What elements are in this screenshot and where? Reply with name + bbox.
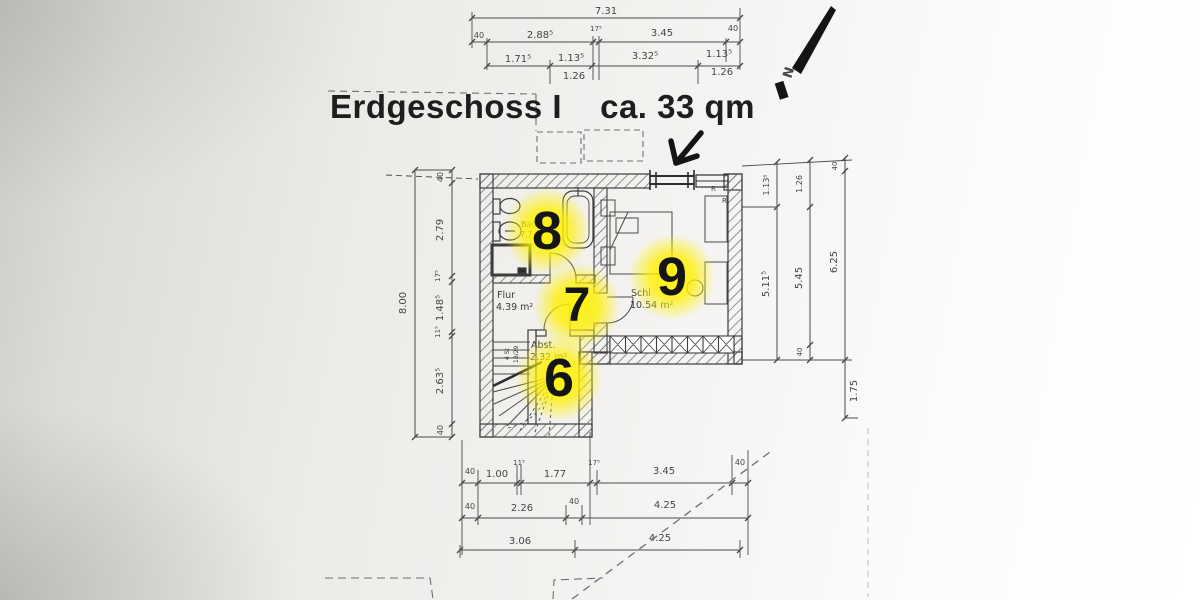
dim-label: 2.79	[435, 219, 446, 241]
dim-label: 1.77	[544, 469, 566, 480]
dimension-labels-top: 7.31 40 2.88⁵ 17⁵ 3.45 40 1.71⁵ 1.13⁵ 3.…	[474, 6, 738, 82]
dimension-chain-bottom	[457, 432, 751, 558]
dim-label: 11⁵	[434, 326, 442, 338]
dim-label: 3.45	[651, 28, 673, 39]
window-band	[610, 336, 734, 353]
dim-label: 1.13⁵	[558, 53, 584, 64]
dim-label: 1.00	[486, 469, 508, 480]
dim-label: 17⁵	[588, 459, 600, 467]
plan-title-main: Erdgeschoss I	[330, 88, 562, 126]
dim-label: 40	[735, 458, 745, 467]
dim-label: 3.45	[653, 466, 675, 477]
entrance-window	[650, 170, 728, 190]
plan-title-area: ca. 33 qm	[600, 88, 755, 126]
wall-left	[480, 174, 493, 437]
dim-label: 40	[831, 162, 839, 171]
room-name-flur: Flur	[497, 290, 515, 301]
dimension-labels-left: 8.00 40 2.79 17⁵ 1.48⁵ 11⁵ 2.63⁵ 40	[398, 172, 446, 435]
dim-label: 17⁵	[434, 270, 442, 282]
dim-label: 40	[465, 467, 475, 476]
wall-bottom-right	[734, 336, 742, 364]
dim-label: 40	[728, 24, 738, 33]
dim-label: 6.25	[829, 251, 840, 273]
dim-label: 3.32⁵	[632, 51, 658, 62]
dim-label: 40	[796, 348, 804, 357]
dim-label: 40	[436, 425, 445, 435]
dim-label: 2.26	[511, 503, 533, 514]
room-area-flur: 4.39 m²	[496, 302, 533, 313]
dim-label: 4.25	[649, 533, 671, 544]
entrance-arrow-icon	[671, 133, 701, 163]
dim-label: 1.26	[795, 175, 804, 193]
floor-plan-page: 7.31 40 2.88⁵ 17⁵ 3.45 40 1.71⁵ 1.13⁵ 3.…	[0, 0, 1200, 600]
dim-label: 3.06	[509, 536, 531, 547]
plan-title: Erdgeschoss I ca. 33 qm	[330, 88, 770, 126]
dim-label: 7.31	[595, 6, 617, 17]
dimension-chain-left	[412, 167, 455, 440]
dim-label: 4.25	[654, 500, 676, 511]
dim-label: 1.75	[849, 380, 860, 402]
dim-label: 40	[569, 497, 579, 506]
dim-label: 40	[465, 502, 475, 511]
dimension-labels-bottom: 40 1.00 11⁵ 1.77 17⁵ 3.45 40 40 2.26 40 …	[465, 458, 745, 547]
dim-label: 17⁵	[590, 25, 602, 33]
marker-6-abst[interactable]: 6	[511, 330, 607, 426]
dim-label: 11⁵	[513, 459, 525, 467]
dim-label: 8.00	[398, 292, 409, 314]
marker-9-schlafen[interactable]: 9	[624, 229, 720, 325]
dim-label: 2.63⁵	[435, 368, 446, 394]
dim-label: 1.26	[711, 67, 733, 78]
dim-label: 1.26	[563, 71, 585, 82]
dim-label: 1.13⁵	[762, 174, 771, 195]
dim-label: 1.71⁵	[505, 54, 531, 65]
wall-mark-r: R	[711, 185, 716, 193]
dim-label: 40	[436, 172, 445, 182]
north-arrow-icon: N	[775, 6, 836, 100]
dim-label: 2.88⁵	[527, 30, 553, 41]
wall-mark-r: R	[722, 197, 727, 205]
dim-label: 1.13⁵	[706, 49, 732, 60]
dim-label: 40	[474, 31, 484, 40]
dim-label: 5.11⁵	[761, 271, 772, 297]
stair-note: 4 St	[504, 347, 511, 360]
dim-label: 5.45	[794, 267, 805, 289]
dim-label: 1.48⁵	[435, 295, 446, 321]
